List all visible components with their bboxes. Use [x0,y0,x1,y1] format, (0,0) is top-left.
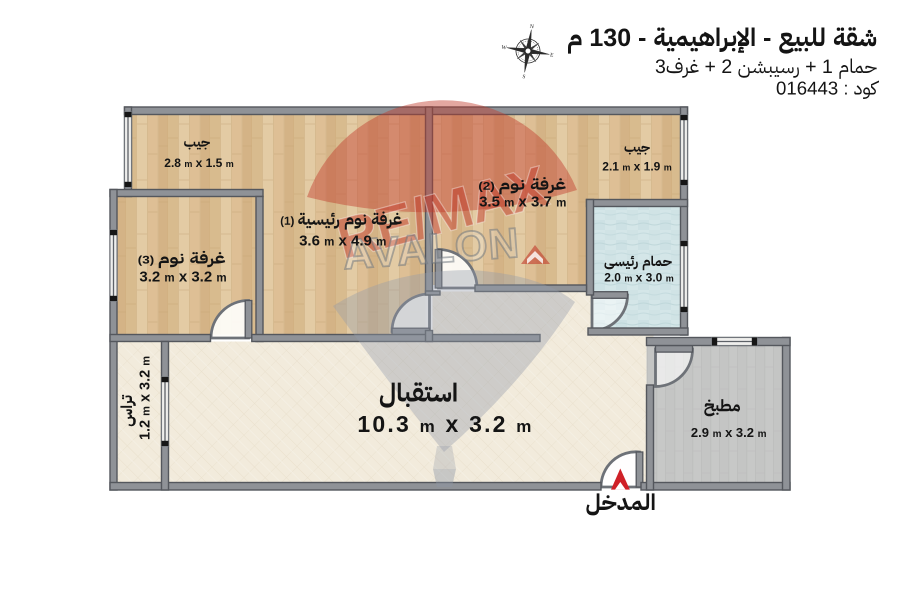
svg-text:10.3 m x 3.2 m: 10.3 m x 3.2 m [357,411,533,437]
svg-text:3.5 m x 3.7 m: 3.5 m x 3.7 m [479,194,566,211]
svg-text:3.6 m x 4.9 m: 3.6 m x 4.9 m [299,232,386,249]
svg-text:2.9 m x 3.2 m: 2.9 m x 3.2 m [691,425,767,440]
svg-text:2.8 m x 1.5 m: 2.8 m x 1.5 m [164,156,233,170]
svg-text:2.0 m x 3.0 m: 2.0 m x 3.0 m [604,271,673,285]
svg-text:1.2 m x 3.2 m: 1.2 m x 3.2 m [138,356,154,440]
svg-text:2.1 m x 1.9 m: 2.1 m x 1.9 m [602,160,671,174]
svg-text:3.2 m x 3.2 m: 3.2 m x 3.2 m [139,269,226,286]
